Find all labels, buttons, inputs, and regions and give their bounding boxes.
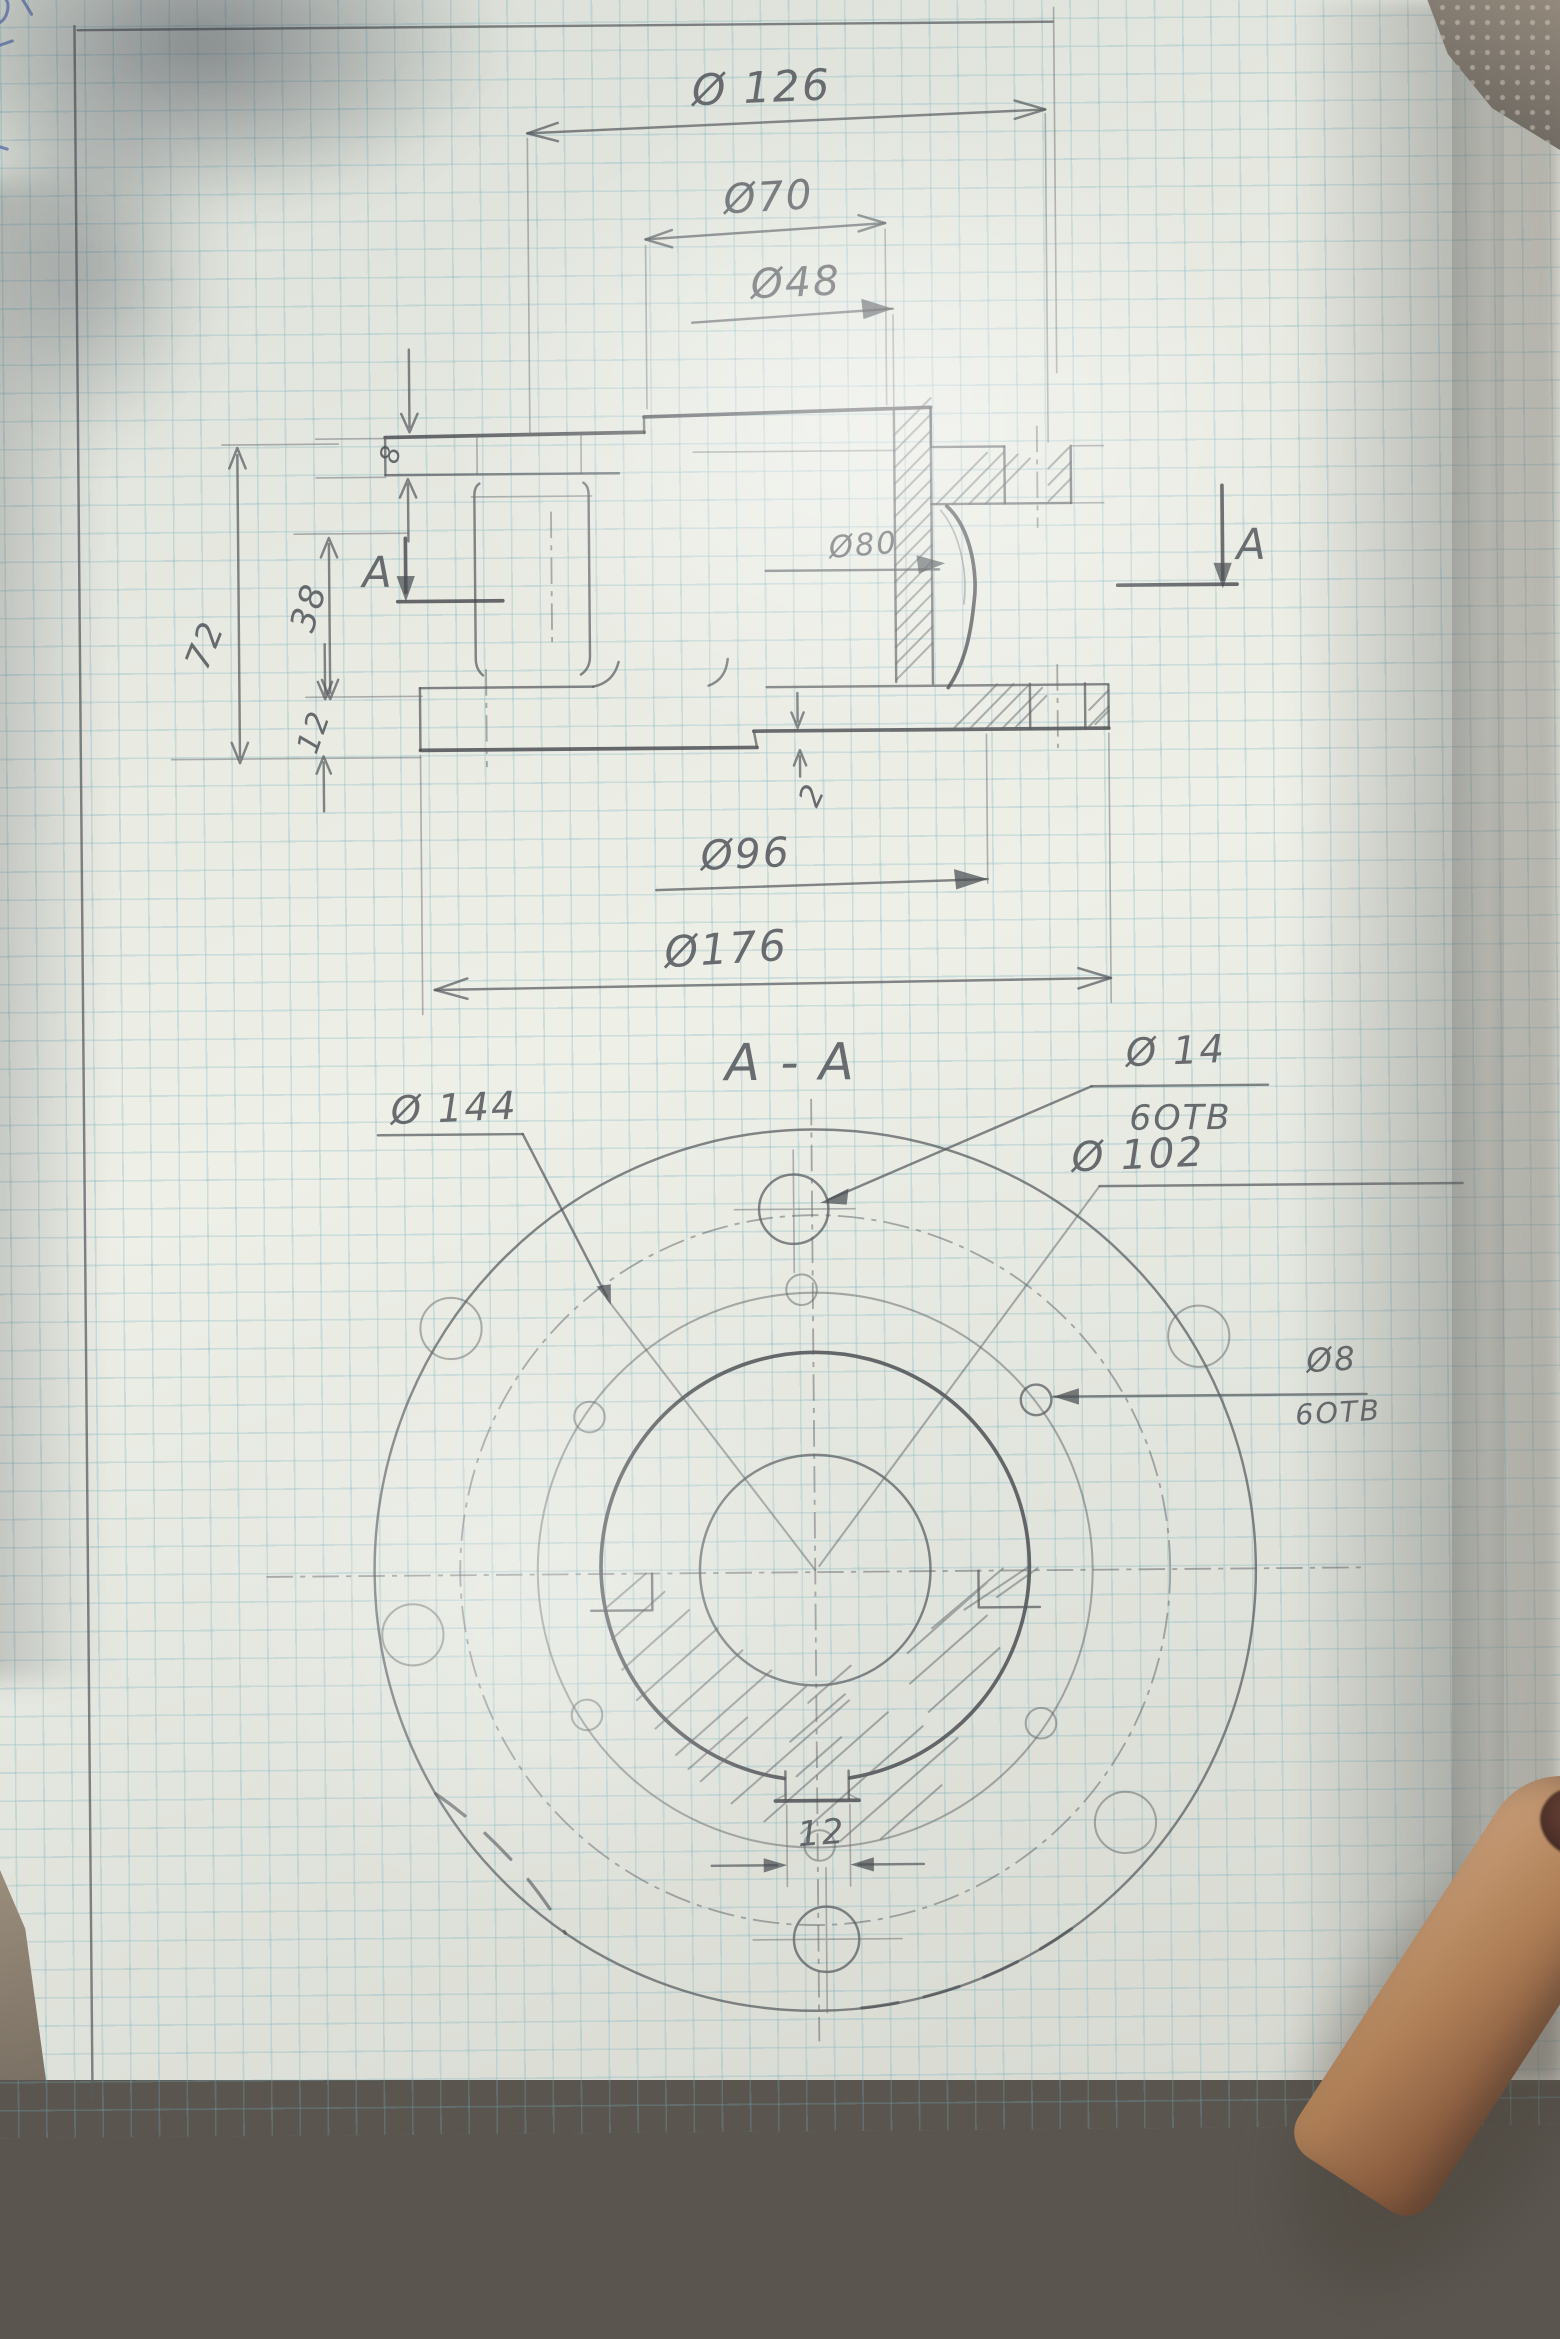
dim-label-d176: Ø176 — [663, 920, 789, 977]
dim-label-d126: Ø 126 — [691, 59, 832, 115]
ink-scribble — [0, 0, 33, 149]
dim-label-d96: Ø96 — [700, 829, 792, 880]
dim-label-d8: Ø8 — [1305, 1339, 1358, 1381]
front-view-centerlines — [484, 426, 1058, 768]
leader-d144 — [378, 1132, 815, 1574]
section-view-title: A - A — [725, 1032, 856, 1092]
section-cut-arrow-left — [396, 538, 503, 602]
dim-h8 — [315, 350, 419, 543]
dim-label-d80: Ø80 — [828, 525, 900, 566]
dim-d48 — [692, 298, 894, 408]
dim-label-d8-holes: 6ОТВ — [1294, 1393, 1382, 1432]
section-marker-label-left: A — [362, 547, 394, 597]
dim-h2 — [791, 693, 806, 777]
dim-label-d70: Ø70 — [722, 171, 815, 223]
notebook-page: Ø 126 Ø70 Ø48 Ø80 8 72 38 12 2 Ø96 Ø176 … — [0, 0, 1560, 2080]
dim-label-d14: Ø 14 — [1125, 1026, 1227, 1075]
dim-label-d48: Ø48 — [750, 258, 842, 309]
front-view-outline — [385, 406, 1109, 751]
section-cut-arrow-right — [1117, 485, 1237, 589]
dim-label-keyway-12: 12 — [796, 1811, 847, 1855]
section-marker-label-right: A — [1236, 519, 1268, 569]
photo-of-notebook-drawing: { "drawing": { "kind": "hand-drawn engin… — [0, 0, 1560, 2080]
section-view — [262, 1083, 1470, 2046]
dim-label-d144: Ø 144 — [390, 1083, 519, 1133]
drawing-frame — [74, 7, 1071, 2098]
dim-label-d102: Ø 102 — [1070, 1129, 1205, 1182]
sheet: Ø 126 Ø70 Ø48 Ø80 8 72 38 12 2 Ø96 Ø176 … — [0, 0, 1560, 2108]
